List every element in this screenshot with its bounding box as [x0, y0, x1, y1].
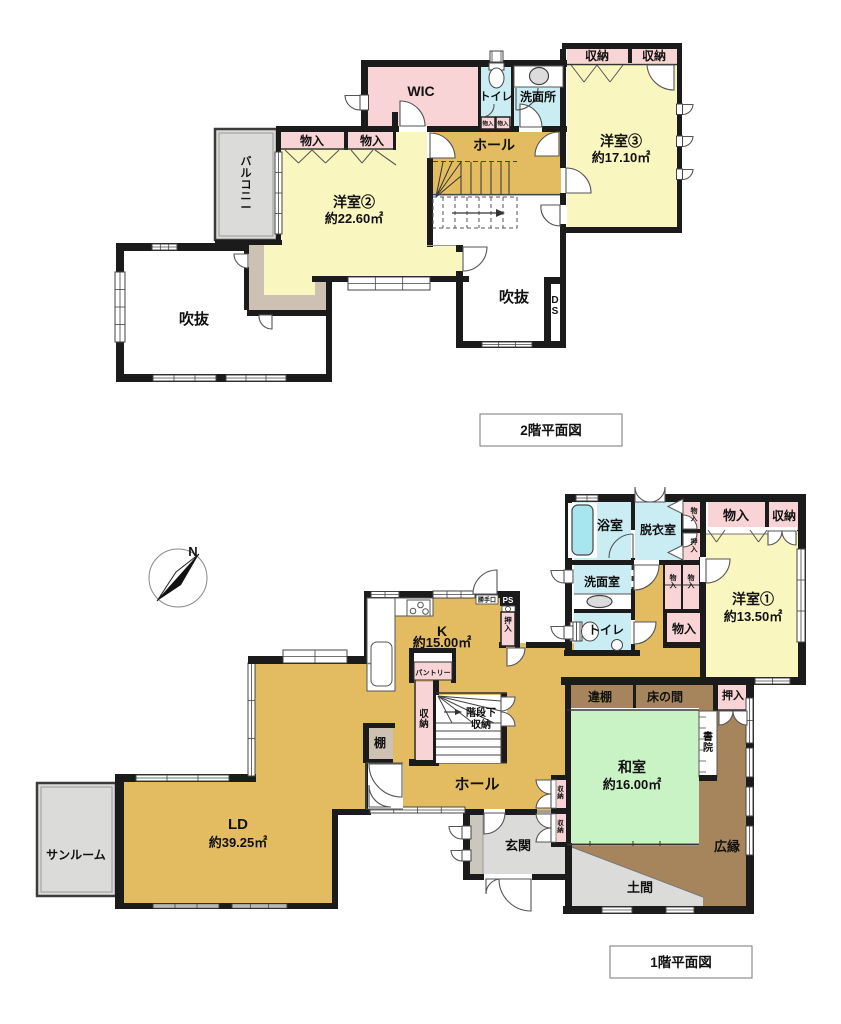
svg-text:納: 納: [419, 718, 429, 730]
svg-text:納: 納: [557, 825, 564, 834]
svg-text:約13.50㎡: 約13.50㎡: [724, 609, 783, 624]
svg-text:吹抜: 吹抜: [179, 310, 210, 328]
svg-text:約15.00㎡: 約15.00㎡: [413, 635, 472, 650]
svg-text:約16.00㎡: 約16.00㎡: [603, 777, 662, 792]
svg-text:物: 物: [691, 506, 698, 515]
svg-text:書: 書: [703, 730, 713, 743]
svg-text:吹抜: 吹抜: [499, 288, 530, 306]
svg-text:ー: ー: [241, 202, 252, 214]
svg-text:バ: バ: [241, 155, 252, 168]
svg-text:物入: 物入: [723, 508, 749, 523]
svg-text:入: 入: [690, 515, 698, 523]
svg-text:ニ: ニ: [241, 191, 252, 203]
svg-text:サンルーム: サンルーム: [46, 848, 106, 862]
svg-text:収納: 収納: [642, 48, 666, 63]
svg-text:1階平面図: 1階平面図: [650, 954, 712, 970]
svg-text:入: 入: [503, 624, 512, 633]
svg-text:物入: 物入: [300, 133, 324, 148]
svg-text:物入: 物入: [497, 120, 509, 128]
svg-text:物: 物: [688, 573, 695, 582]
svg-text:洋室①: 洋室①: [732, 591, 774, 607]
svg-text:トイレ: トイレ: [588, 623, 624, 637]
svg-text:浴室: 浴室: [597, 518, 623, 533]
svg-text:押入: 押入: [722, 688, 744, 702]
svg-text:院: 院: [703, 741, 713, 754]
svg-text:入: 入: [669, 582, 677, 590]
svg-text:玄関: 玄関: [505, 838, 531, 853]
svg-text:床の間: 床の間: [647, 689, 683, 704]
svg-text:勝手口: 勝手口: [478, 596, 496, 604]
svg-text:洗面室: 洗面室: [584, 574, 620, 589]
svg-text:収納: 収納: [585, 48, 609, 63]
svg-text:階段下: 階段下: [466, 706, 496, 719]
svg-text:納: 納: [557, 791, 564, 800]
svg-text:物入: 物入: [360, 133, 384, 148]
svg-text:ホール: ホール: [454, 776, 499, 793]
svg-text:パントリー: パントリー: [415, 668, 450, 677]
svg-text:違棚: 違棚: [588, 689, 612, 704]
svg-text:物: 物: [670, 573, 677, 582]
svg-text:物入: 物入: [482, 120, 494, 128]
svg-text:約39.25㎡: 約39.25㎡: [209, 835, 268, 850]
svg-text:洗面所: 洗面所: [520, 89, 556, 104]
svg-text:収納: 収納: [772, 508, 796, 523]
svg-text:LD: LD: [228, 816, 248, 833]
svg-text:洋室③: 洋室③: [600, 133, 642, 149]
svg-text:約17.10㎡: 約17.10㎡: [592, 150, 651, 165]
svg-text:収: 収: [557, 818, 564, 827]
svg-text:入: 入: [687, 582, 695, 590]
svg-text:洋室②: 洋室②: [333, 194, 375, 210]
svg-text:D: D: [551, 295, 558, 306]
svg-text:収: 収: [557, 784, 564, 793]
svg-text:ホール: ホール: [473, 137, 515, 153]
svg-text:S: S: [552, 306, 559, 317]
svg-text:脱衣室: 脱衣室: [640, 522, 676, 537]
svg-text:PS: PS: [503, 596, 514, 605]
svg-text:広縁: 広縁: [714, 839, 740, 854]
svg-text:物入: 物入: [672, 621, 696, 636]
svg-text:収納: 収納: [471, 718, 491, 731]
svg-text:押: 押: [691, 537, 698, 546]
svg-text:WIC: WIC: [407, 83, 434, 99]
svg-text:土間: 土間: [627, 880, 653, 895]
svg-text:和室: 和室: [618, 759, 646, 775]
svg-text:コ: コ: [241, 179, 252, 191]
svg-text:約22.60㎡: 約22.60㎡: [325, 211, 384, 226]
svg-text:N: N: [188, 544, 197, 559]
svg-text:トイレ: トイレ: [480, 90, 513, 103]
svg-text:ル: ル: [241, 168, 252, 180]
svg-text:入: 入: [690, 546, 698, 554]
svg-text:2階平面図: 2階平面図: [520, 422, 582, 438]
svg-text:棚: 棚: [374, 735, 386, 750]
